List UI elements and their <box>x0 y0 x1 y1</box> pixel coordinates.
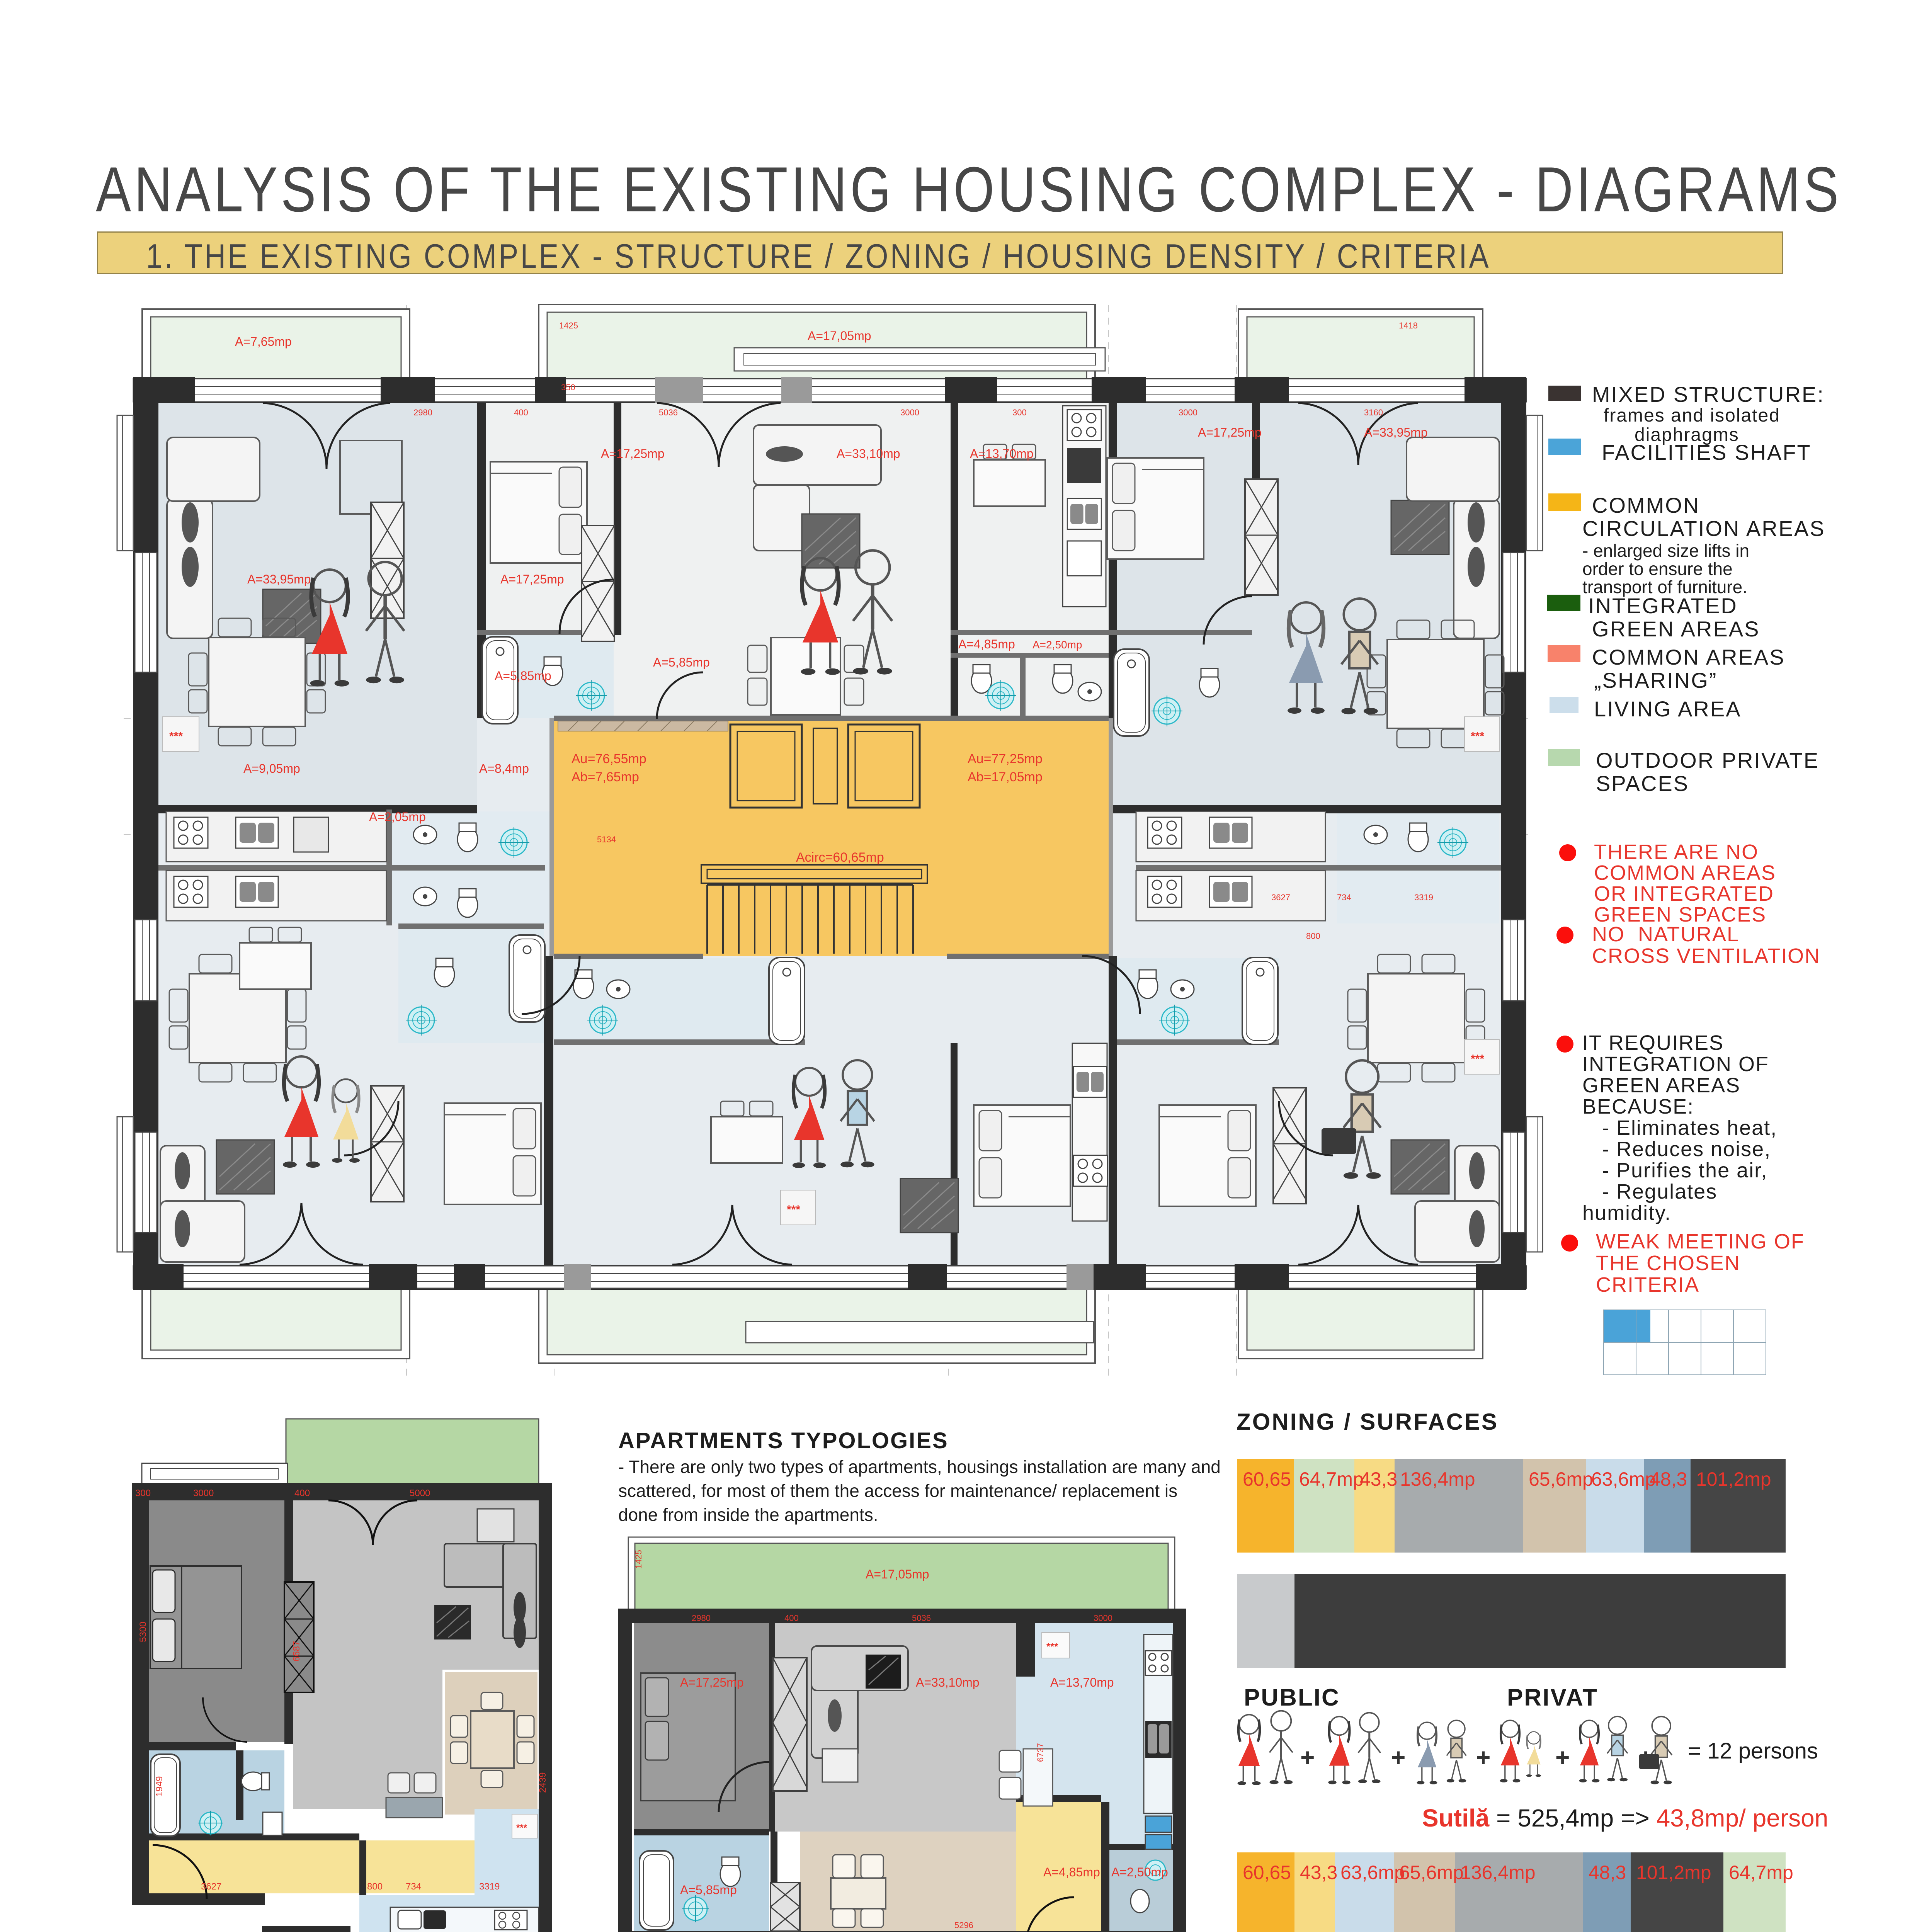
svg-text:+: + <box>1300 1743 1315 1771</box>
svg-text:48,3: 48,3 <box>1650 1468 1687 1490</box>
svg-text:136,4mp: 136,4mp <box>1460 1862 1536 1883</box>
svg-text:101,2mp: 101,2mp <box>1696 1468 1771 1490</box>
svg-text:64,7mp: 64,7mp <box>1299 1468 1364 1490</box>
svg-text:136,4mp: 136,4mp <box>1400 1468 1475 1490</box>
svg-text:101,2mp: 101,2mp <box>1636 1862 1711 1883</box>
svg-text:65,6mp: 65,6mp <box>1529 1468 1593 1490</box>
svg-text:63,6mp: 63,6mp <box>1340 1862 1405 1883</box>
svg-text:64,7mp: 64,7mp <box>1729 1862 1793 1883</box>
svg-text:63,6mp: 63,6mp <box>1591 1468 1656 1490</box>
svg-text:43,3: 43,3 <box>1300 1862 1337 1883</box>
svg-text:60,65: 60,65 <box>1243 1468 1291 1490</box>
svg-text:43,3: 43,3 <box>1360 1468 1397 1490</box>
svg-text:60,65: 60,65 <box>1243 1862 1291 1883</box>
svg-text:+: + <box>1476 1743 1490 1771</box>
svg-text:+: + <box>1555 1743 1570 1771</box>
svg-text:48,3: 48,3 <box>1589 1862 1626 1883</box>
svg-text:65,6mp: 65,6mp <box>1399 1862 1464 1883</box>
svg-text:+: + <box>1391 1743 1405 1771</box>
